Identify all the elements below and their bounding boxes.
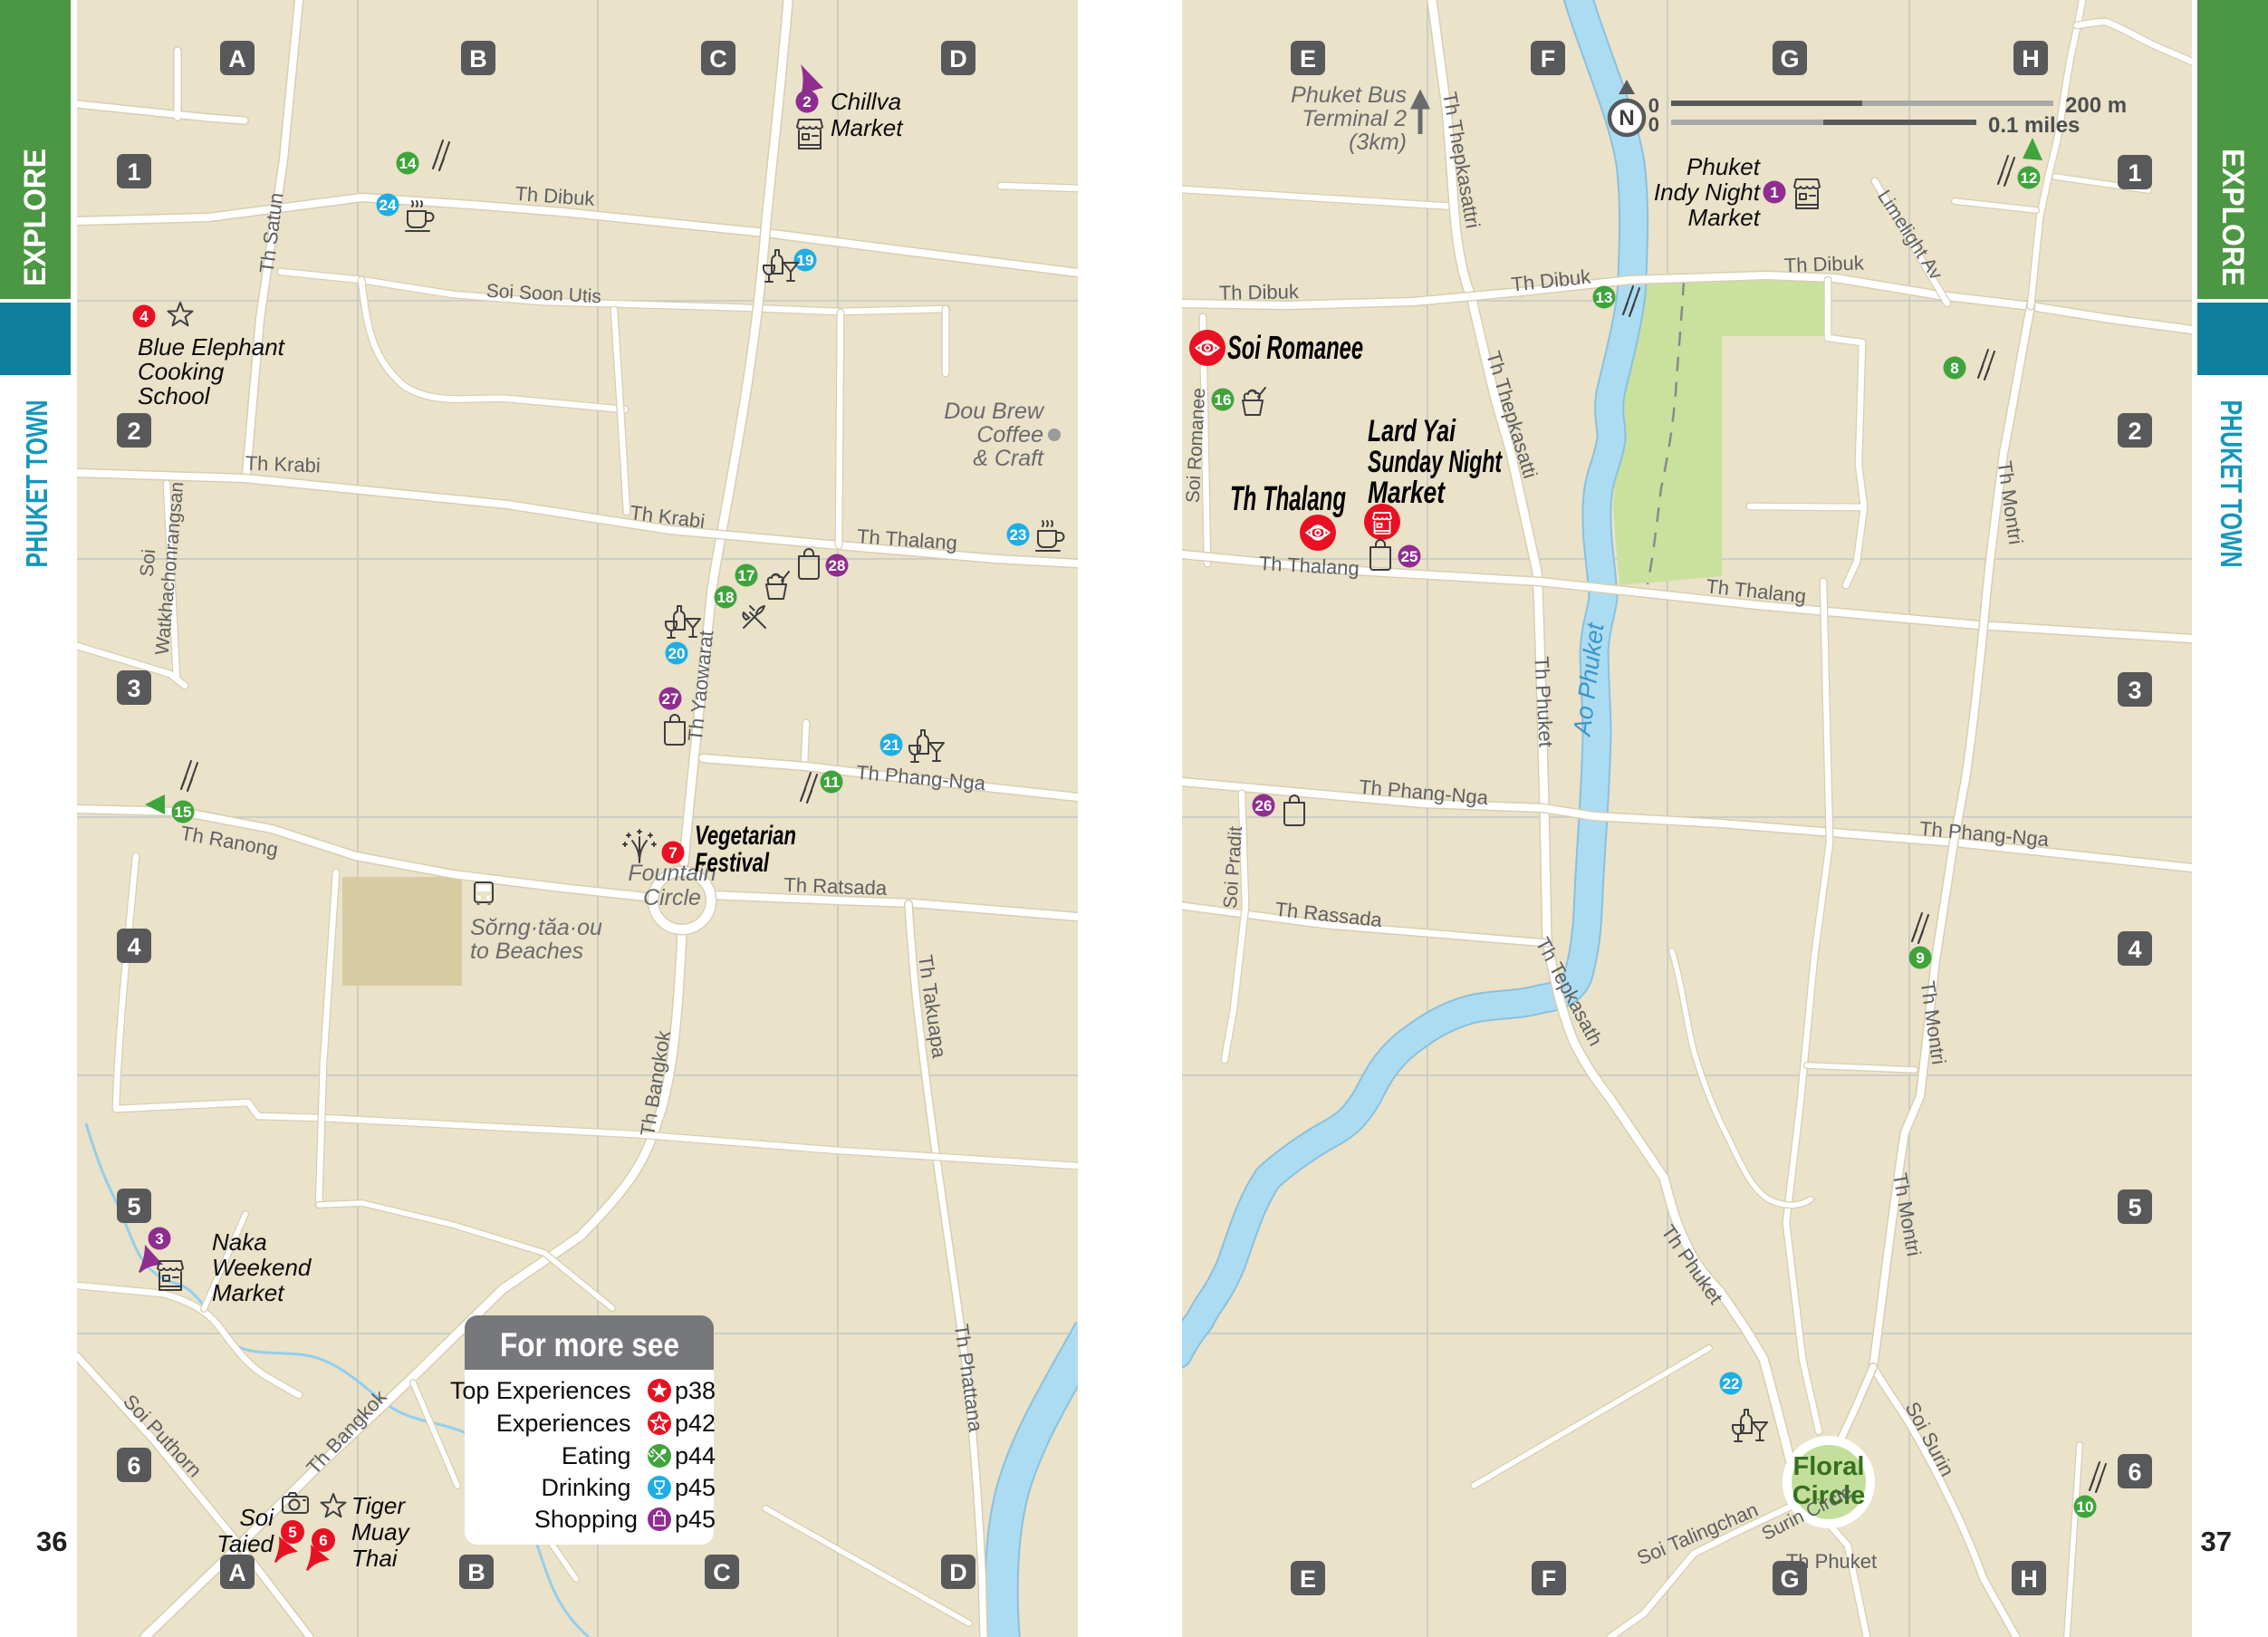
svg-text:F: F: [1542, 1565, 1557, 1593]
svg-text:26: 26: [1255, 797, 1273, 814]
svg-text:Sŏrng·tăa·ou: Sŏrng·tăa·ou: [470, 915, 602, 940]
svg-text:1: 1: [127, 159, 140, 186]
svg-text:13: 13: [1596, 289, 1613, 306]
svg-text:23: 23: [1010, 526, 1027, 544]
svg-text:PHUKET TOWN: PHUKET TOWN: [2215, 400, 2248, 568]
svg-text:H: H: [2020, 1565, 2038, 1593]
svg-text:Th Thalang: Th Thalang: [1230, 480, 1346, 518]
svg-text:4: 4: [2128, 936, 2141, 963]
svg-text:15: 15: [175, 804, 192, 821]
svg-text:37: 37: [2201, 1526, 2232, 1557]
svg-text:3: 3: [2128, 677, 2141, 704]
svg-text:G: G: [1780, 45, 1799, 72]
svg-text:18: 18: [717, 589, 735, 606]
svg-text:17: 17: [738, 567, 755, 584]
svg-text:H: H: [2022, 45, 2040, 72]
svg-text:11: 11: [823, 774, 840, 791]
svg-text:Taied: Taied: [216, 1530, 274, 1557]
svg-text:Naka: Naka: [212, 1228, 267, 1256]
svg-text:4: 4: [127, 933, 140, 960]
svg-text:EXPLORE: EXPLORE: [2215, 149, 2250, 286]
svg-text:2: 2: [802, 93, 811, 111]
svg-text:Market: Market: [212, 1279, 285, 1306]
svg-text:Soi Romanee: Soi Romanee: [1227, 329, 1363, 366]
svg-text:Phuket Bus: Phuket Bus: [1291, 82, 1407, 108]
svg-text:27: 27: [662, 690, 679, 708]
svg-text:6: 6: [127, 1452, 140, 1479]
svg-text:Weekend: Weekend: [212, 1254, 312, 1281]
svg-text:0: 0: [1648, 113, 1659, 136]
svg-text:21: 21: [883, 737, 900, 754]
svg-text:B: B: [469, 45, 487, 72]
svg-text:22: 22: [1723, 1375, 1740, 1392]
svg-text:D: D: [949, 1559, 967, 1586]
svg-text:C: C: [713, 1559, 731, 1586]
svg-text:p38 p42 p44 p45 p45: p38 p42 p44 p45 p45: [675, 1377, 723, 1533]
svg-text:G: G: [1780, 1565, 1799, 1593]
svg-text:Phuket: Phuket: [1687, 153, 1762, 180]
svg-text:Blue Elephant: Blue Elephant: [138, 333, 286, 361]
svg-text:Cooking: Cooking: [138, 358, 225, 385]
svg-text:9: 9: [1916, 949, 1924, 967]
svg-text:25: 25: [1401, 548, 1418, 565]
svg-text:N: N: [1619, 106, 1634, 130]
svg-text:Sunday Night: Sunday Night: [1368, 445, 1503, 479]
svg-text:3: 3: [155, 1230, 163, 1247]
svg-text:E: E: [1300, 45, 1316, 72]
svg-text:5: 5: [288, 1524, 296, 1541]
svg-text:A: A: [228, 1559, 246, 1586]
svg-text:F: F: [1541, 45, 1556, 72]
svg-text:1: 1: [2128, 159, 2141, 187]
svg-text:Market: Market: [831, 114, 904, 141]
svg-text:& Craft: & Craft: [973, 446, 1044, 471]
svg-text:Th Krabi: Th Krabi: [245, 452, 321, 477]
svg-text:Indy Night: Indy Night: [1654, 178, 1762, 206]
svg-text:D: D: [949, 45, 967, 72]
svg-text:Th Dibuk: Th Dibuk: [1783, 251, 1865, 276]
svg-text:For more see: For more see: [500, 1326, 679, 1363]
svg-text:EXPLORE: EXPLORE: [18, 149, 53, 286]
svg-text:24: 24: [380, 197, 397, 214]
svg-text:Circle: Circle: [643, 885, 701, 910]
svg-text:Terminal 2: Terminal 2: [1302, 106, 1407, 131]
svg-text:14: 14: [399, 155, 417, 172]
svg-text:Festival: Festival: [695, 848, 769, 878]
svg-text:0.1 miles: 0.1 miles: [1988, 113, 2080, 138]
svg-text:6: 6: [319, 1532, 327, 1549]
svg-text:Floral: Floral: [1793, 1452, 1865, 1481]
svg-text:Thai: Thai: [351, 1545, 399, 1572]
svg-text:7: 7: [668, 844, 677, 862]
svg-text:Th Phuket: Th Phuket: [1530, 656, 1557, 747]
svg-text:Th Dibuk: Th Dibuk: [1219, 280, 1300, 304]
svg-text:Lard Yai: Lard Yai: [1368, 414, 1456, 448]
svg-text:20: 20: [668, 645, 686, 662]
svg-text:School: School: [138, 382, 211, 409]
svg-text:Muay: Muay: [351, 1518, 411, 1546]
svg-text:B: B: [467, 1559, 485, 1586]
svg-text:8: 8: [1950, 360, 1958, 377]
svg-text:Coffee: Coffee: [976, 422, 1043, 448]
svg-text:5: 5: [127, 1193, 140, 1220]
svg-text:Vegetarian: Vegetarian: [695, 821, 796, 851]
svg-text:16: 16: [1215, 391, 1232, 409]
svg-text:Soi: Soi: [137, 548, 160, 577]
svg-text:12: 12: [2021, 169, 2038, 187]
svg-text:Th Ratsada: Th Ratsada: [783, 873, 888, 900]
svg-text:4: 4: [139, 308, 149, 325]
svg-text:PHUKET TOWN: PHUKET TOWN: [20, 400, 53, 568]
svg-text:19: 19: [797, 252, 814, 269]
svg-text:Market: Market: [1688, 204, 1762, 231]
svg-text:3: 3: [127, 675, 140, 702]
svg-text:6: 6: [2128, 1459, 2141, 1486]
svg-text:10: 10: [2077, 1498, 2094, 1516]
svg-text:2: 2: [127, 418, 140, 445]
svg-text:Chillva: Chillva: [831, 88, 901, 115]
svg-text:E: E: [1300, 1565, 1316, 1593]
svg-text:C: C: [709, 45, 727, 72]
svg-text:28: 28: [829, 557, 846, 574]
svg-text:36: 36: [36, 1526, 67, 1557]
svg-text:1: 1: [1770, 184, 1778, 201]
svg-text:Soi: Soi: [239, 1504, 274, 1531]
svg-text:2: 2: [2128, 418, 2141, 445]
svg-text:Dou Brew: Dou Brew: [944, 399, 1045, 424]
svg-text:to Beaches: to Beaches: [470, 939, 583, 964]
svg-text:5: 5: [2128, 1194, 2141, 1221]
svg-text:Tiger: Tiger: [351, 1492, 406, 1519]
svg-text:(3km): (3km): [1349, 130, 1407, 155]
svg-text:A: A: [228, 45, 246, 72]
